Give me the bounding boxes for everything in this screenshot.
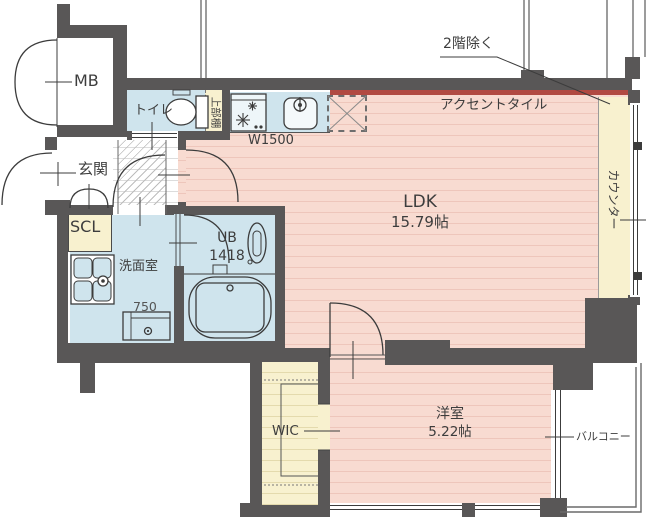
- label-upper-shelf: 上部棚: [208, 91, 221, 135]
- floor-plan: MB トイレ 上部棚 玄関 SCL 洗面室 750 UB 1418 LDK 15…: [0, 0, 647, 523]
- room-label-entrance: 玄関: [78, 160, 108, 179]
- label-excluding-2f: 2階除く: [443, 36, 494, 54]
- room-label-washroom: 洗面室: [119, 259, 158, 275]
- bathtub: [189, 277, 271, 338]
- window-lock-mark: [633, 142, 642, 150]
- entrance-door-arc: [2, 153, 52, 205]
- bedroom-door-arc: [330, 303, 383, 355]
- mb-door-arc: [15, 82, 57, 125]
- toilet-shelf: [173, 90, 190, 95]
- mb-door-arc: [15, 40, 57, 82]
- room-label-counter: カウンター: [606, 170, 621, 224]
- room-label-balcony: バルコニー: [576, 430, 631, 444]
- label-vanity-width: 750: [133, 299, 157, 315]
- bath-drain: [213, 265, 227, 274]
- room-label-mb: MB: [74, 71, 99, 91]
- room-label-toilet: トイレ: [134, 103, 173, 119]
- washroom-door-arc: [113, 155, 165, 207]
- room-label-ldk: LDK 15.79帖: [370, 192, 470, 232]
- room-label-bedroom: 洋室 5.22帖: [400, 406, 500, 440]
- window-lock-mark: [633, 272, 642, 280]
- scl-door-arc: [89, 189, 108, 208]
- ldk-door-arc: [186, 150, 238, 202]
- scl-door-arc: [70, 189, 89, 208]
- label-accent-tile: アクセントタイル: [440, 97, 547, 114]
- room-label-wic: WIC: [272, 423, 299, 440]
- label-kitchen-width: W1500: [248, 133, 294, 149]
- room-label-unit-bath: UB 1418: [203, 230, 251, 265]
- room-label-scl: SCL: [70, 217, 100, 237]
- vanity: [123, 312, 170, 340]
- toilet-tank: [196, 96, 208, 128]
